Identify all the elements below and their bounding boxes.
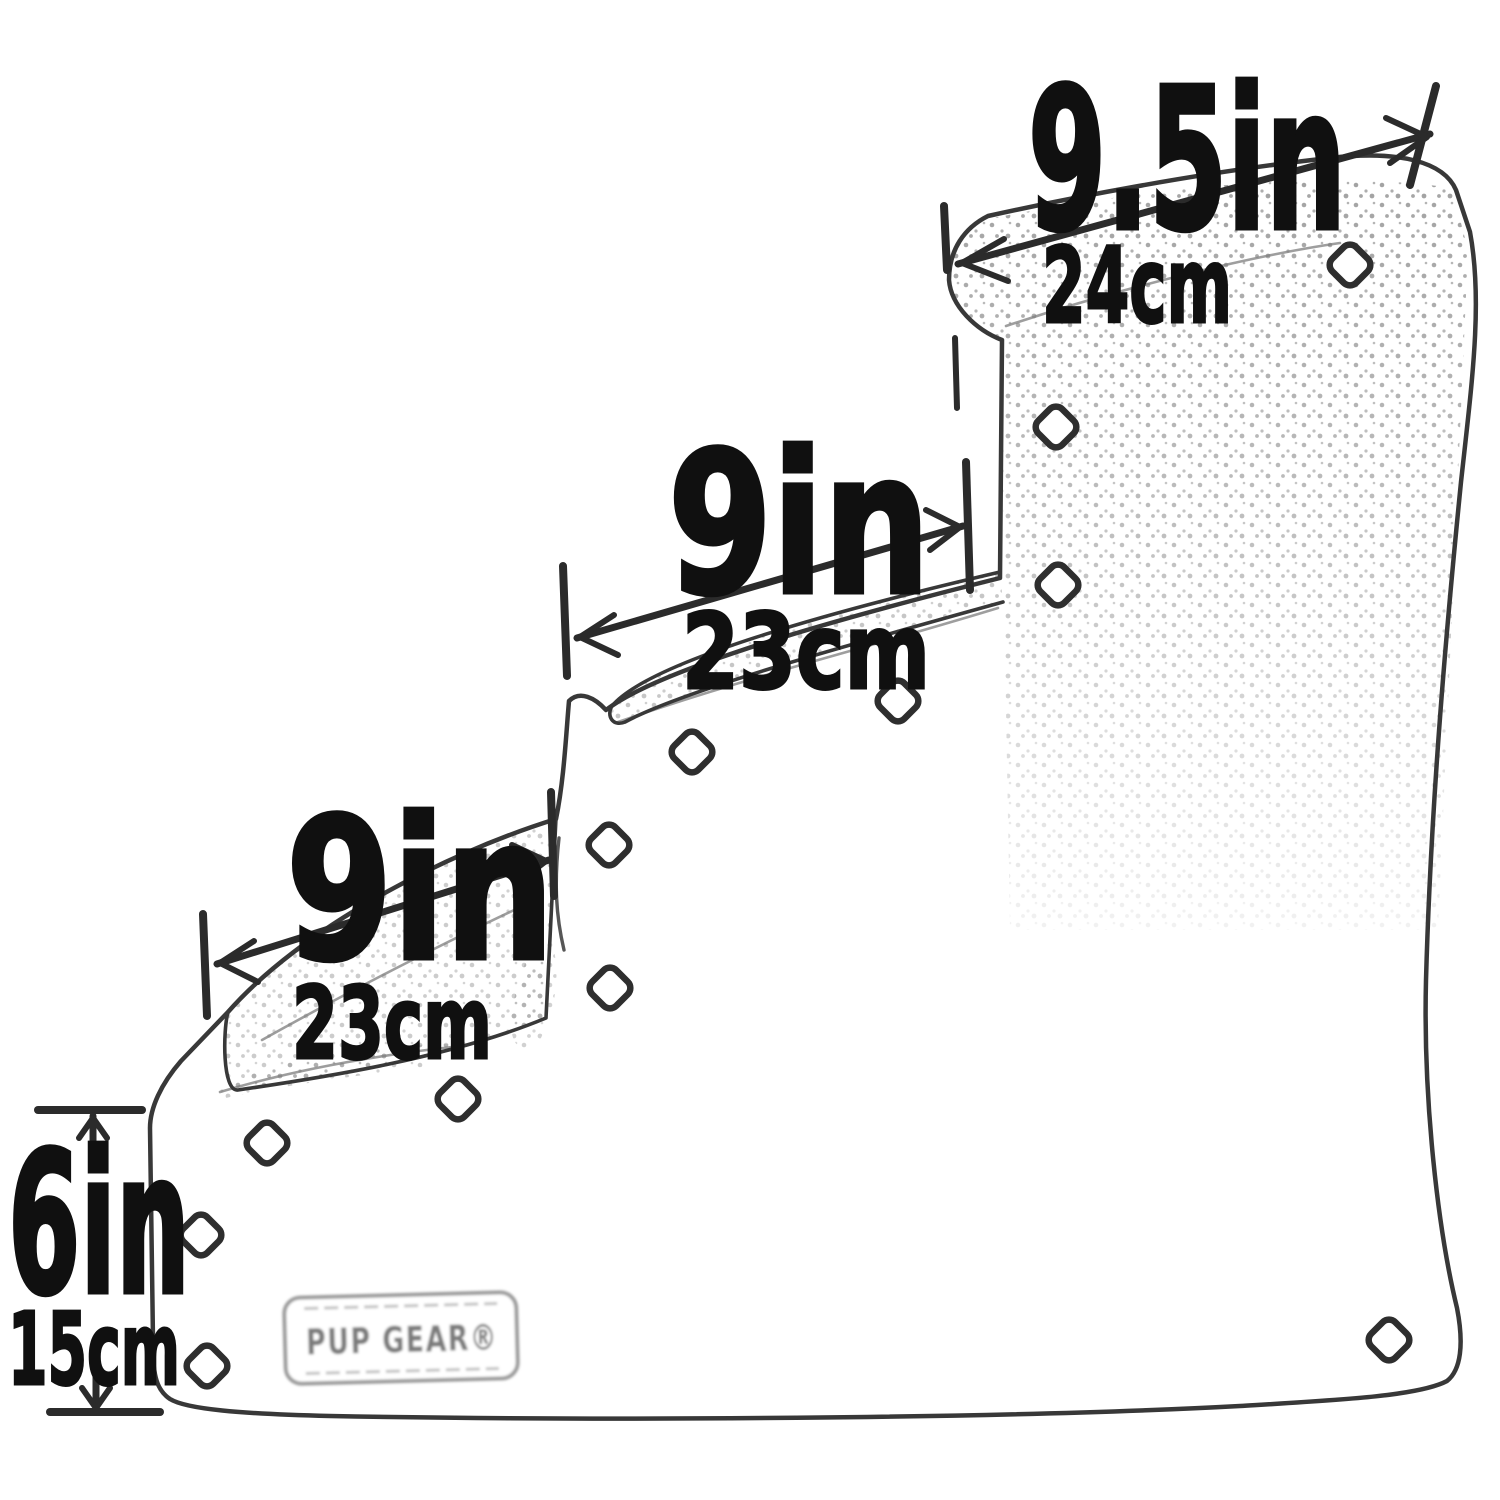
dimension-tick-left (563, 566, 567, 676)
diamond-cutout-icon (585, 821, 633, 869)
diamond-cutout-icon (243, 1119, 291, 1167)
diagram-canvas: 9.5in 24cm 9in 23cm 9in 23cm 6in 15cm PU… (0, 0, 1500, 1500)
dimension-arrow-left (220, 941, 258, 982)
dim-top-metric-label: 24cm (1042, 225, 1232, 347)
dim-lower-metric-label: 23cm (292, 965, 492, 1082)
diamond-cutout-icon (1365, 1316, 1413, 1364)
dimension-tick-left (203, 914, 207, 1016)
diamond-cutout-icon (668, 728, 716, 776)
diamond-cutout-icon (183, 1342, 231, 1390)
brand-label: PUP GEAR® (306, 1317, 499, 1363)
dim-height-metric-label: 15cm (8, 1291, 180, 1408)
pet-stairs-dimension-diagram: 9.5in 24cm 9in 23cm 9in 23cm 6in 15cm PU… (0, 0, 1500, 1500)
dimension-tick-right (966, 462, 970, 590)
dimension-tick-left (944, 206, 947, 270)
brand-plate: PUP GEAR® (284, 1292, 518, 1384)
dim-middle-metric-label: 23cm (682, 591, 930, 713)
dimension-extension-stub (955, 338, 957, 408)
diamond-cutout-icon (434, 1075, 482, 1123)
diamond-cutout-icon (586, 964, 634, 1012)
